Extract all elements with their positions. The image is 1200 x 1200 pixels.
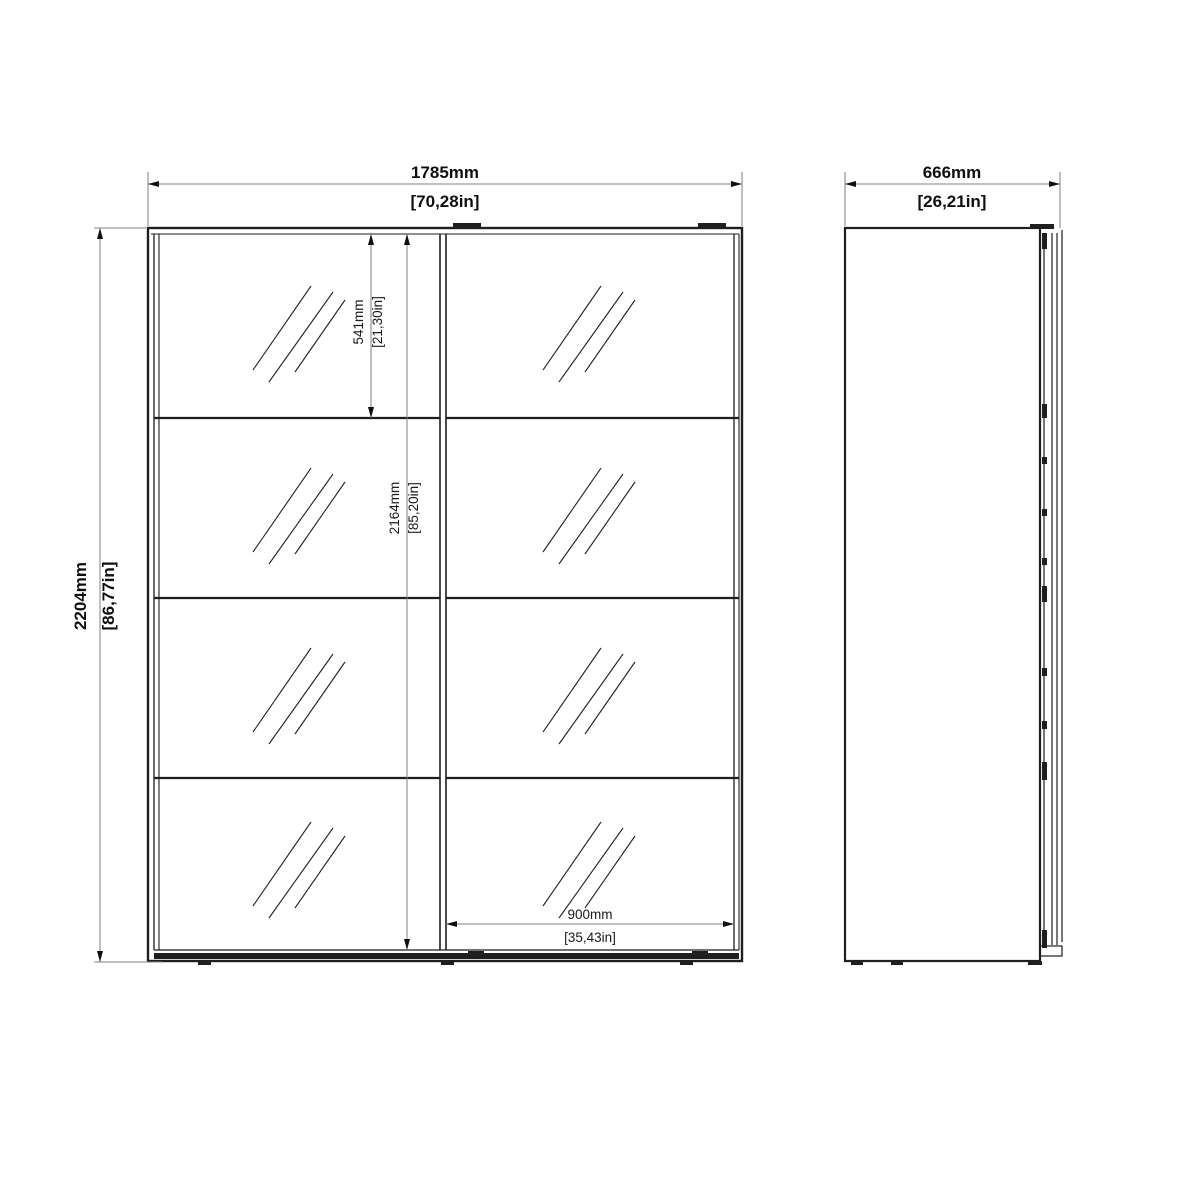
top-section-mm-label: 541mm — [351, 299, 366, 344]
arrowhead — [723, 921, 734, 927]
side-body-frame — [845, 228, 1040, 961]
front-foot — [198, 961, 211, 965]
front-foot — [441, 961, 454, 965]
bottom-door-guide-left — [468, 951, 484, 957]
arrowhead — [368, 407, 374, 418]
front-height-in-label: [86,77in] — [99, 562, 118, 631]
top-door-guide-right — [698, 223, 726, 228]
dimension-annotations: 1785mm [70,28in] 666mm [26,21in] 2204mm … — [71, 163, 1060, 962]
arrowhead — [404, 234, 410, 245]
arrowhead — [404, 939, 410, 950]
side-foot — [891, 961, 903, 965]
door-width-mm-label: 900mm — [567, 907, 612, 922]
side-depth-in-label: [26,21in] — [918, 192, 987, 211]
arrowhead — [97, 951, 103, 962]
side-depth-mm-label: 666mm — [923, 163, 982, 182]
mirror-hatch — [253, 468, 345, 564]
side-top-roller — [1042, 233, 1047, 249]
top-door-guide-left — [453, 223, 481, 228]
side-view — [845, 224, 1062, 965]
front-height-mm-label: 2204mm — [71, 562, 90, 630]
technical-drawing: 1785mm [70,28in] 666mm [26,21in] 2204mm … — [0, 0, 1200, 1200]
arrowhead — [368, 234, 374, 245]
front-view — [148, 223, 742, 965]
front-width-in-label: [70,28in] — [411, 192, 480, 211]
dim-door-width: 900mm [35,43in] — [446, 907, 734, 945]
side-foot — [851, 961, 863, 965]
front-base-rail — [154, 953, 739, 959]
top-section-in-label: [21,30in] — [370, 296, 385, 348]
arrowhead — [97, 228, 103, 239]
arrowhead — [845, 181, 856, 187]
door-height-mm-label: 2164mm — [387, 482, 402, 535]
mirror-hatch — [253, 286, 345, 382]
drawing-canvas: 1785mm [70,28in] 666mm [26,21in] 2204mm … — [0, 0, 1200, 1200]
side-top-track-cap — [1030, 224, 1054, 229]
front-outer-frame — [148, 228, 742, 961]
dim-door-height: 2164mm [85,20in] — [387, 234, 421, 950]
mirror-hatch — [543, 648, 635, 744]
arrowhead — [731, 181, 742, 187]
front-foot — [680, 961, 693, 965]
mirror-hatch — [253, 822, 345, 918]
arrowhead — [446, 921, 457, 927]
arrowhead — [148, 181, 159, 187]
dim-side-depth: 666mm [26,21in] — [845, 163, 1060, 228]
side-foot — [1028, 961, 1042, 965]
arrowhead — [1049, 181, 1060, 187]
door-width-in-label: [35,43in] — [564, 930, 616, 945]
mirror-hatch — [253, 648, 345, 744]
front-width-mm-label: 1785mm — [411, 163, 479, 182]
mirror-hatches — [253, 286, 635, 918]
door-height-in-label: [85,20in] — [406, 482, 421, 534]
dim-top-section: 541mm [21,30in] — [351, 234, 385, 418]
dim-front-width: 1785mm [70,28in] — [148, 163, 742, 226]
mirror-hatch — [543, 286, 635, 382]
mirror-hatch — [543, 822, 635, 918]
bottom-door-guide-right — [692, 951, 708, 957]
mirror-hatch — [543, 468, 635, 564]
